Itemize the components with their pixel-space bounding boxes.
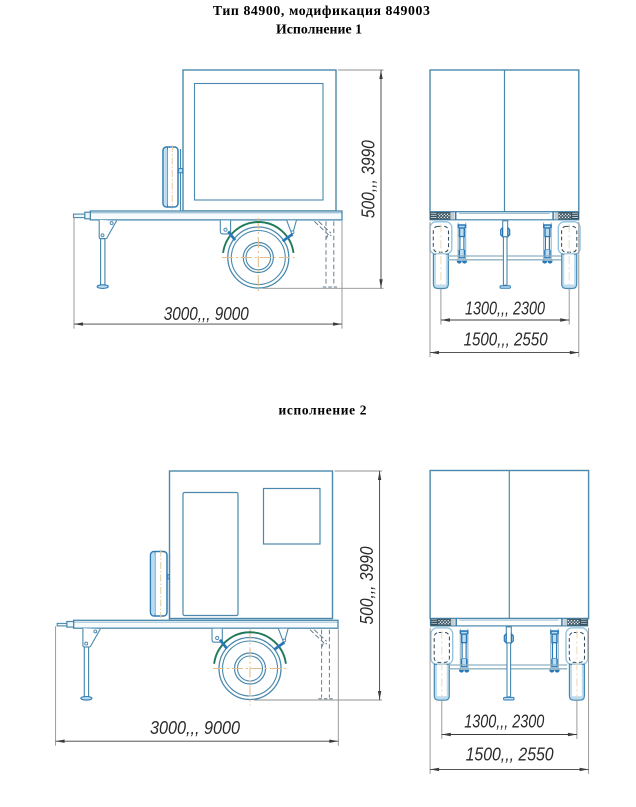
svg-text:3000,,, 9000: 3000,,, 9000: [150, 717, 241, 738]
svg-text:500,,, 3990: 500,,, 3990: [358, 139, 379, 218]
svg-text:3000,,, 9000: 3000,,, 9000: [164, 303, 250, 324]
svg-text:1300,,, 2300: 1300,,, 2300: [465, 298, 546, 319]
svg-text:Исполнение 1: Исполнение 1: [276, 22, 362, 37]
svg-text:1500,,, 2550: 1500,,, 2550: [464, 329, 549, 350]
svg-text:Тип 84900, модификация 849003: Тип 84900, модификация 849003: [213, 3, 430, 18]
svg-text:500,,, 3990: 500,,, 3990: [356, 546, 377, 625]
svg-text:1500,,, 2550: 1500,,, 2550: [466, 743, 555, 764]
svg-text:1300,,, 2300: 1300,,, 2300: [464, 711, 545, 732]
svg-text:исполнение 2: исполнение 2: [279, 403, 367, 418]
